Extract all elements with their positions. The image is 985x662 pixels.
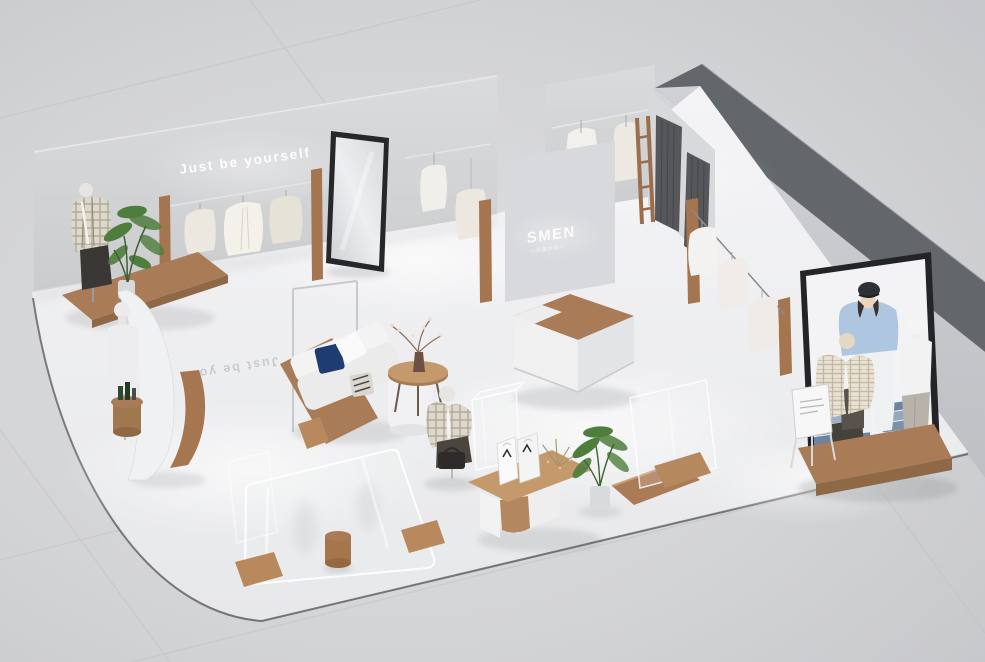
wooden-post bbox=[479, 199, 492, 303]
mannequin-torso bbox=[900, 338, 932, 401]
wooden-stool bbox=[324, 531, 352, 573]
hanging-garment bbox=[420, 165, 447, 212]
wooden-post bbox=[311, 168, 323, 281]
cosmetic-bottle bbox=[132, 388, 136, 400]
tan-handbag bbox=[500, 495, 530, 533]
shopping-bag bbox=[497, 437, 518, 485]
glass-partition-right bbox=[630, 380, 716, 488]
hanging-garment bbox=[688, 227, 718, 276]
shopping-bag bbox=[517, 433, 540, 483]
cosmetic-bottle bbox=[118, 386, 123, 400]
mannequin-skirt bbox=[80, 245, 112, 290]
fitting-room-curtain bbox=[655, 115, 682, 232]
mannequin-jacket bbox=[71, 196, 111, 252]
mannequin-head bbox=[839, 333, 855, 349]
hanging-garment bbox=[269, 196, 302, 244]
vase bbox=[413, 352, 425, 372]
mannequin-head bbox=[439, 386, 455, 402]
brand-wall: SMEN —诗曼女装— bbox=[505, 141, 615, 302]
hanging-garment bbox=[747, 297, 778, 352]
hanging-garment bbox=[224, 202, 263, 256]
store-scene-svg: Just be yourself SMEN —诗曼女装— bbox=[0, 0, 985, 662]
hanging-garment bbox=[717, 259, 748, 310]
plant-pot bbox=[590, 486, 610, 508]
cosmetic-bottle bbox=[125, 382, 130, 400]
patterned-pillow bbox=[349, 372, 374, 397]
hanging-garment bbox=[184, 209, 215, 254]
store-render: Just be yourself SMEN —诗曼女装— bbox=[0, 0, 985, 662]
cashier-counter bbox=[513, 294, 637, 410]
mannequin-jacket bbox=[846, 355, 875, 414]
mannequin-head bbox=[908, 318, 926, 336]
mannequin-head bbox=[79, 183, 93, 197]
leaning-mirror bbox=[326, 131, 390, 278]
